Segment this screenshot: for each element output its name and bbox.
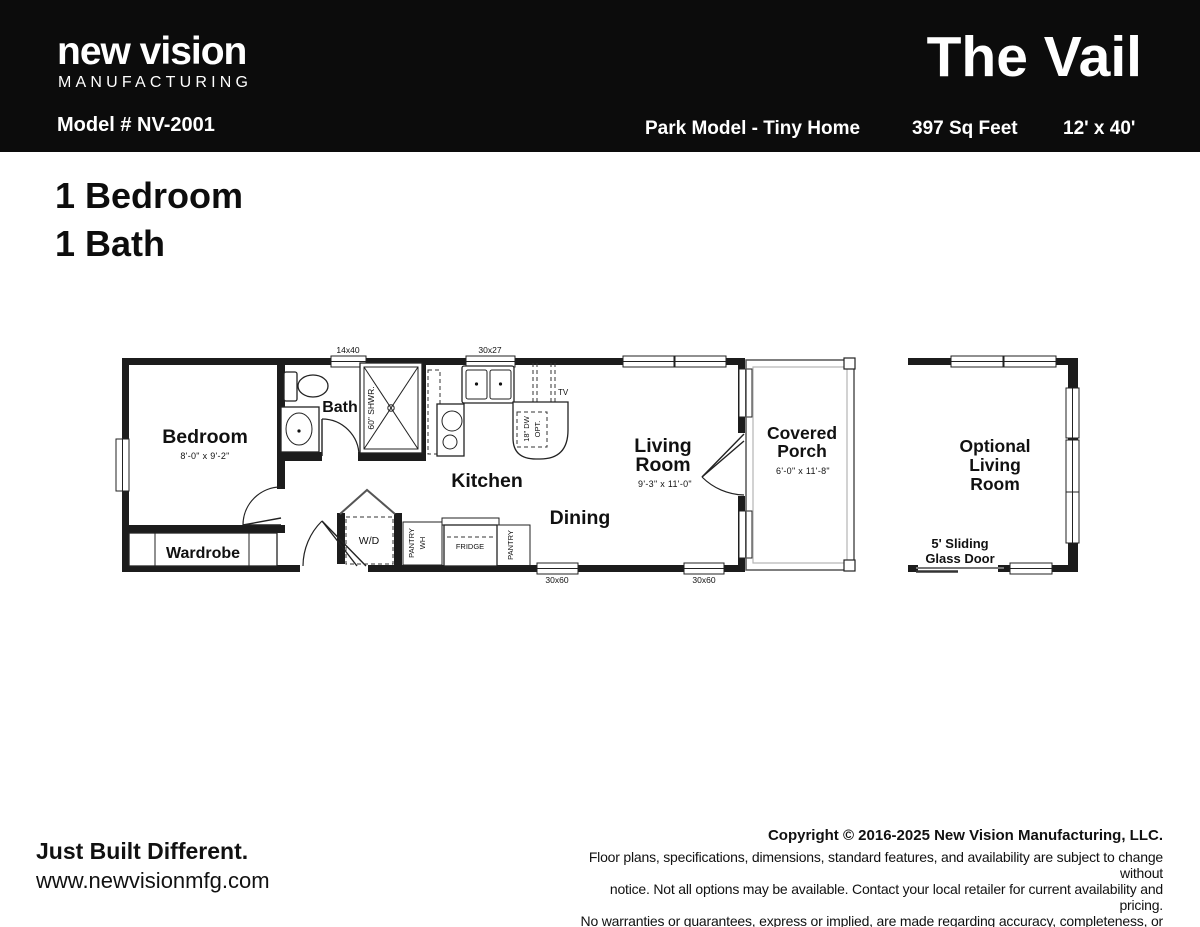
legal-block: Copyright © 2016-2025 New Vision Manufac…: [563, 827, 1163, 927]
sliding-door-label-2: Glass Door: [925, 551, 994, 566]
entry-door: [303, 521, 366, 566]
covered-porch-structure: [746, 358, 855, 571]
tagline: Just Built Different.: [36, 838, 248, 865]
bedroom-label: Bedroom: [162, 426, 248, 448]
model-number: Model # NV-2001: [57, 114, 215, 137]
optional-room-label-1: Optional: [960, 436, 1031, 456]
bath-label: Bath: [322, 399, 358, 416]
spec-square-feet: 397 Sq Feet: [912, 118, 1018, 140]
disclaimer: Floor plans, specifications, dimensions,…: [563, 849, 1163, 927]
sliding-door-label-1: 5' Sliding: [931, 536, 988, 551]
spec-dimensions: 12' x 40': [1063, 118, 1135, 140]
tv-label: TV: [558, 388, 569, 397]
bath-sink: [281, 407, 319, 452]
optional-room-label-2: Living: [969, 455, 1021, 475]
window-label-14x40: 14x40: [336, 345, 359, 355]
wardrobe-label: Wardrobe: [166, 545, 240, 562]
bed-bath-summary: 1 Bedroom 1 Bath: [55, 172, 243, 268]
bath-count: 1 Bath: [55, 220, 243, 268]
disclaimer-line-1: Floor plans, specifications, dimensions,…: [563, 849, 1163, 881]
optional-room-label-3: Room: [970, 474, 1020, 494]
shower-label: 60" SHWR.: [366, 386, 376, 429]
living-room-dims: 9'-3" x 11'-0": [638, 479, 692, 489]
flyer-page: new vision MANUFACTURING Model # NV-2001…: [0, 0, 1200, 927]
living-room-label-2: Room: [635, 454, 690, 476]
window-label-30x60-a: 30x60: [545, 575, 568, 585]
disclaimer-line-2: notice. Not all options may be available…: [563, 881, 1163, 913]
fridge-label: FRIDGE: [456, 542, 484, 551]
page-title: The Vail: [927, 24, 1142, 90]
kitchen-label: Kitchen: [451, 470, 523, 492]
sliding-glass-door: [916, 568, 1004, 572]
website-link[interactable]: www.newvisionmfg.com: [36, 868, 270, 894]
toilet: [284, 372, 328, 401]
porch-label-2: Porch: [777, 441, 827, 461]
brand-name: new vision: [57, 30, 246, 74]
window-label-30x27: 30x27: [478, 345, 501, 355]
porch-dims: 6'-0" x 11'-8": [776, 466, 830, 476]
copyright: Copyright © 2016-2025 New Vision Manufac…: [563, 827, 1163, 844]
bedroom-door: [243, 487, 281, 525]
brand-subtitle: MANUFACTURING: [58, 74, 252, 92]
spec-type: Park Model - Tiny Home: [645, 118, 860, 140]
disclaimer-line-3: No warranties or guarantees, express or …: [563, 913, 1163, 927]
washer-dryer-closet: [340, 490, 395, 564]
floor-plan: 14x40 30x27 30x60 30x60: [100, 330, 1100, 600]
porch-label-1: Covered: [767, 423, 837, 443]
bedroom-count: 1 Bedroom: [55, 172, 243, 220]
wd-label: W/D: [359, 535, 380, 547]
dining-label: Dining: [550, 507, 611, 529]
stove: [437, 404, 464, 456]
bedroom-dims: 8'-0" x 9'-2": [180, 451, 229, 461]
bath-door-arc: [322, 419, 359, 456]
pantry-wh-label-1: PANTRY: [407, 528, 416, 558]
header-bar: new vision MANUFACTURING Model # NV-2001…: [0, 0, 1200, 152]
dishwasher-label-2: OPT.: [533, 421, 542, 438]
dishwasher-label-1: 18" DW: [522, 415, 531, 442]
pantry-wh-label-2: WH: [418, 537, 427, 550]
pantry-label: PANTRY: [506, 530, 515, 560]
kitchen-sink: [462, 366, 514, 403]
window-label-30x60-b: 30x60: [692, 575, 715, 585]
